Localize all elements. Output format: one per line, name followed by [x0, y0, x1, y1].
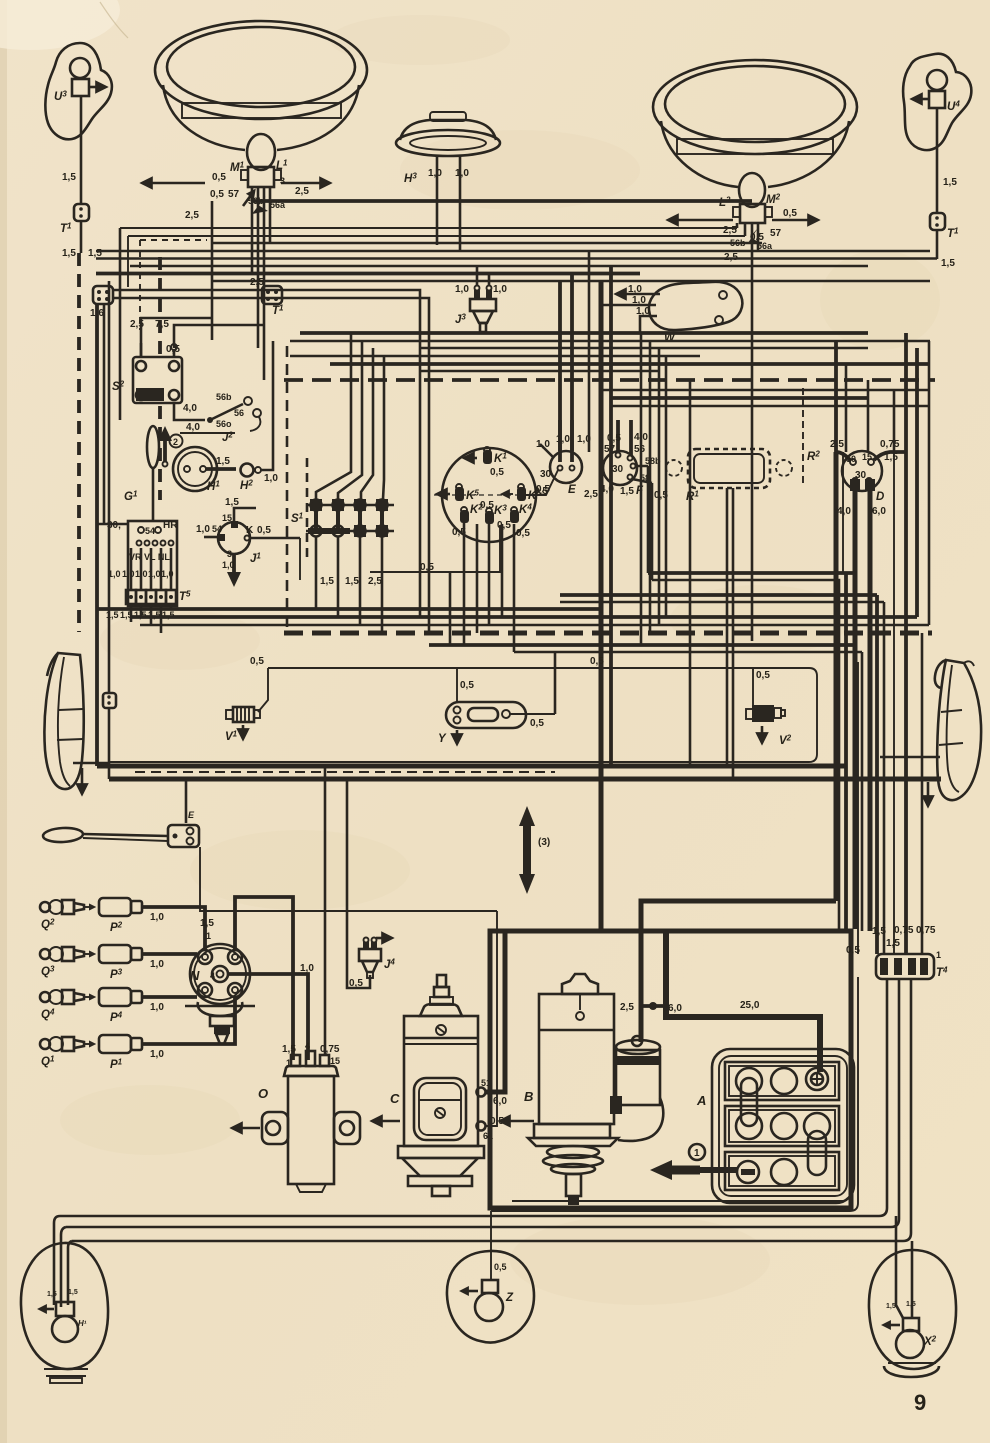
svg-text:1,5: 1,5 [345, 576, 359, 587]
svg-text:1: 1 [694, 1148, 700, 1159]
svg-text:1,0: 1,0 [455, 284, 469, 295]
svg-text:50: 50 [846, 454, 856, 464]
svg-text:1,0: 1,0 [150, 959, 164, 970]
svg-text:1,5: 1,5 [282, 1044, 296, 1055]
svg-text:2,5: 2,5 [250, 277, 264, 288]
svg-text:0,5: 0,5 [534, 486, 548, 497]
svg-text:0,5: 0,5 [516, 528, 530, 539]
svg-text:56: 56 [234, 408, 244, 418]
svg-text:7,5: 7,5 [155, 319, 169, 330]
svg-text:1,0: 1,0 [300, 963, 314, 974]
svg-text:0,5: 0,5 [480, 500, 494, 511]
svg-text:1,0: 1,0 [428, 168, 442, 179]
svg-text:HR: HR [163, 520, 178, 531]
svg-text:0,5: 0,5 [846, 945, 860, 956]
svg-text:0,5: 0,5 [494, 1262, 507, 1272]
svg-text:1,0: 1,0 [222, 560, 235, 570]
svg-text:E: E [188, 810, 195, 820]
svg-text:3: 3 [227, 549, 232, 559]
svg-text:6,0: 6,0 [872, 506, 886, 517]
svg-text:K: K [246, 525, 254, 536]
svg-text:0,5: 0,5 [257, 525, 271, 536]
svg-text:H¹: H¹ [78, 1319, 87, 1328]
svg-text:D: D [876, 491, 884, 503]
svg-text:1,0: 1,0 [196, 524, 210, 535]
svg-text:A: A [696, 1093, 706, 1108]
svg-text:4,0: 4,0 [186, 422, 200, 433]
svg-text:0,75: 0,75 [894, 925, 914, 936]
svg-text:1,5: 1,5 [68, 1289, 78, 1296]
svg-text:6,0: 6,0 [668, 1003, 682, 1014]
svg-text:2,5: 2,5 [185, 210, 199, 221]
svg-text:57: 57 [228, 189, 240, 200]
svg-text:0,5: 0,5 [349, 978, 363, 989]
svg-text:1,5: 1,5 [225, 497, 239, 508]
svg-text:15: 15 [222, 513, 232, 523]
svg-text:4,0: 4,0 [837, 506, 851, 517]
svg-text:30: 30 [540, 469, 552, 480]
svg-text:1,0: 1,0 [150, 912, 164, 923]
svg-text:1,5: 1,5 [62, 248, 76, 259]
svg-text:0,5: 0,5 [783, 208, 797, 219]
svg-text:1,0: 1,0 [536, 439, 550, 450]
svg-text:0,5: 0,5 [420, 562, 434, 573]
svg-text:0,5: 0,5 [530, 718, 544, 729]
svg-text:0,5: 0,5 [250, 656, 264, 667]
svg-text:1,5: 1,5 [216, 456, 230, 467]
svg-text:2,5: 2,5 [584, 489, 598, 500]
svg-text:O: O [258, 1086, 268, 1101]
svg-text:1,0: 1,0 [122, 569, 135, 579]
svg-text:1,0: 1,0 [493, 284, 507, 295]
svg-text:2,5: 2,5 [368, 576, 382, 587]
svg-text:1,5: 1,5 [943, 177, 957, 188]
svg-text:0,75: 0,75 [916, 925, 936, 936]
svg-text:C: C [390, 1091, 400, 1106]
svg-text:E: E [568, 484, 576, 496]
svg-text:1,5: 1,5 [47, 1291, 57, 1298]
svg-text:1,0: 1,0 [264, 473, 278, 484]
svg-text:4: 4 [305, 1041, 310, 1051]
svg-text:4,0: 4,0 [183, 403, 197, 414]
svg-text:1,5: 1,5 [320, 576, 334, 587]
svg-text:56o: 56o [216, 419, 232, 429]
svg-text:54: 54 [145, 526, 155, 536]
svg-text:54: 54 [212, 524, 222, 534]
svg-text:0,75: 0,75 [880, 439, 900, 450]
svg-text:3: 3 [280, 176, 285, 186]
svg-text:2,5: 2,5 [723, 225, 737, 236]
svg-text:B: B [524, 1089, 533, 1104]
svg-text:1,5: 1,5 [941, 258, 955, 269]
svg-text:N: N [190, 968, 200, 983]
svg-text:1,5: 1,5 [884, 452, 898, 463]
svg-text:Y: Y [438, 733, 447, 745]
svg-text:1,0: 1,0 [455, 168, 469, 179]
svg-text:0,5: 0,5 [756, 670, 770, 681]
svg-text:(3): (3) [538, 837, 550, 848]
svg-text:VR VL NL: VR VL NL [129, 552, 170, 562]
svg-text:2,5: 2,5 [620, 1002, 634, 1013]
svg-text:56b: 56b [216, 392, 232, 402]
svg-text:0,75: 0,75 [320, 1044, 340, 1055]
svg-text:30: 30 [612, 464, 624, 475]
svg-text:15: 15 [862, 452, 872, 462]
svg-text:1,5: 1,5 [886, 1303, 896, 1310]
svg-text:0,5: 0,5 [210, 189, 224, 200]
svg-text:15: 15 [330, 1056, 340, 1066]
svg-text:25,0: 25,0 [740, 1000, 760, 1011]
svg-text:4: 4 [210, 971, 215, 981]
svg-text:1,0: 1,0 [150, 1002, 164, 1013]
svg-text:1: 1 [936, 950, 941, 960]
svg-text:1,5: 1,5 [872, 926, 886, 937]
svg-text:0,5: 0,5 [590, 656, 604, 667]
svg-text:6,0: 6,0 [493, 1096, 507, 1107]
svg-text:0,5: 0,5 [212, 172, 226, 183]
svg-text:2,5: 2,5 [295, 186, 309, 197]
svg-text:9: 9 [914, 1390, 926, 1415]
svg-text:2: 2 [173, 437, 178, 447]
svg-text:1,5: 1,5 [620, 486, 634, 497]
svg-text:0,5: 0,5 [460, 680, 474, 691]
svg-text:0,5: 0,5 [490, 467, 504, 478]
svg-text:1,5: 1,5 [886, 938, 900, 949]
svg-text:1,0: 1,0 [150, 1049, 164, 1060]
svg-text:1,5: 1,5 [200, 918, 214, 929]
svg-text:1,5: 1,5 [62, 172, 76, 183]
svg-text:1,5: 1,5 [906, 1301, 916, 1308]
svg-text:57: 57 [770, 228, 782, 239]
svg-text:1: 1 [206, 931, 211, 941]
svg-text:Z: Z [505, 1292, 514, 1304]
